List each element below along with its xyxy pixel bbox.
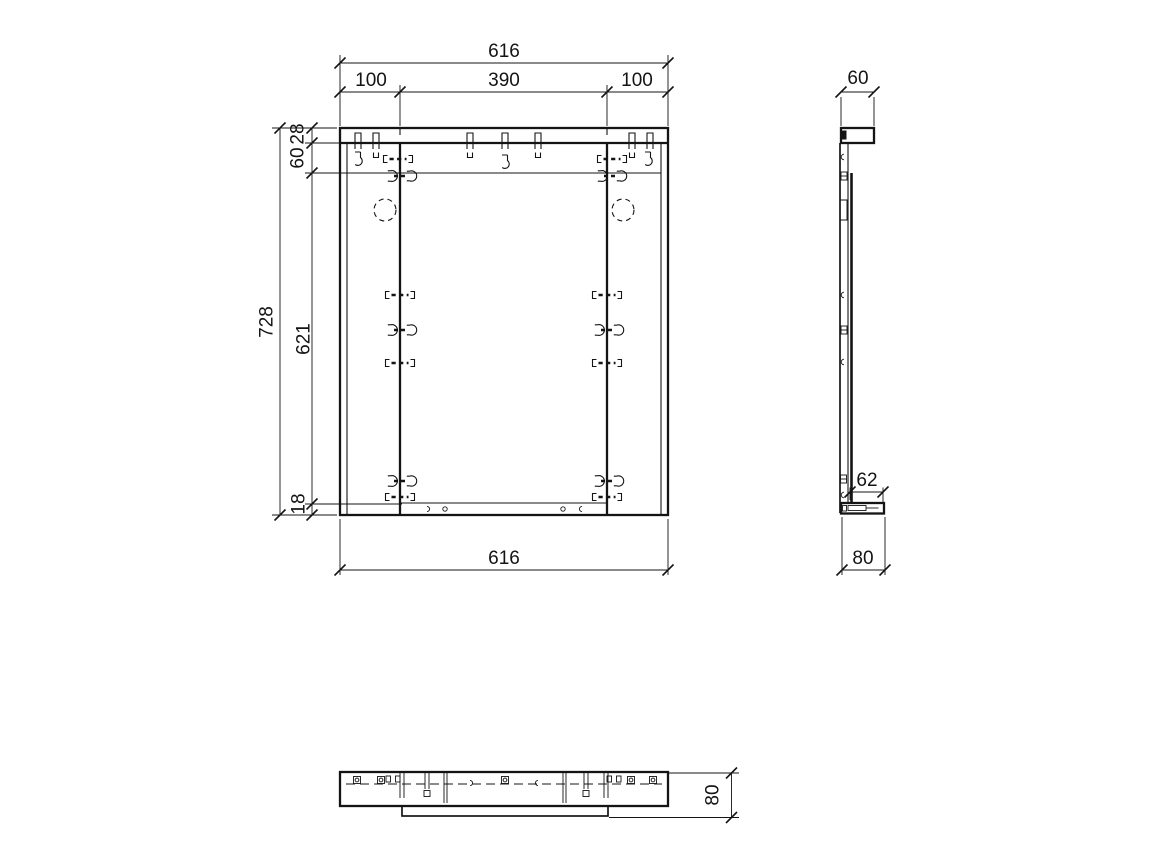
dim-label-18: 18 [289,493,310,514]
dim-label-621: 621 [294,323,315,355]
dim-front-overall-bottom: 616 [335,519,674,576]
dim-label-616-top: 616 [488,41,520,62]
front-panel-outline [305,128,668,515]
dim-label-728: 728 [257,306,278,338]
dim-side-rail-depth: 60 [836,68,880,126]
dim-front-top-chain: 100 390 100 [335,70,674,126]
hinge-hole-right-icon [612,199,634,221]
front-bottom-hardware [386,476,624,512]
side-fittings [840,154,847,498]
dim-label-80-side: 80 [852,548,873,569]
dim-label-62: 62 [856,470,877,491]
dim-label-390: 390 [488,70,520,91]
dim-front-height: 728 [257,123,338,521]
dim-label-616-bottom: 616 [488,548,520,569]
dim-bottom-depth: 80 [609,768,739,824]
dim-label-60-offset: 60 [288,147,309,168]
dim-label-100-left: 100 [355,70,387,91]
front-middle-hardware [386,292,624,367]
bottom-view: 80 [340,768,739,824]
dim-label-100-right: 100 [621,70,653,91]
dim-label-60-depth: 60 [847,68,868,89]
technical-drawing-canvas: 616 100 390 100 728 28 60 621 [0,0,1157,867]
dim-label-28: 28 [288,123,309,144]
dim-label-80-bottom: 80 [703,784,724,805]
dim-front-left-chain: 28 60 621 18 [288,123,403,521]
dim-side-rail-bottom: 80 [837,517,891,576]
hinge-hole-left-icon [374,199,396,221]
cabinet-panel-drawing: 616 100 390 100 728 28 60 621 [0,0,1157,867]
side-view: 60 62 [836,68,891,576]
front-view: 616 100 390 100 728 28 60 621 [257,41,674,576]
side-panel-outline [840,128,884,514]
